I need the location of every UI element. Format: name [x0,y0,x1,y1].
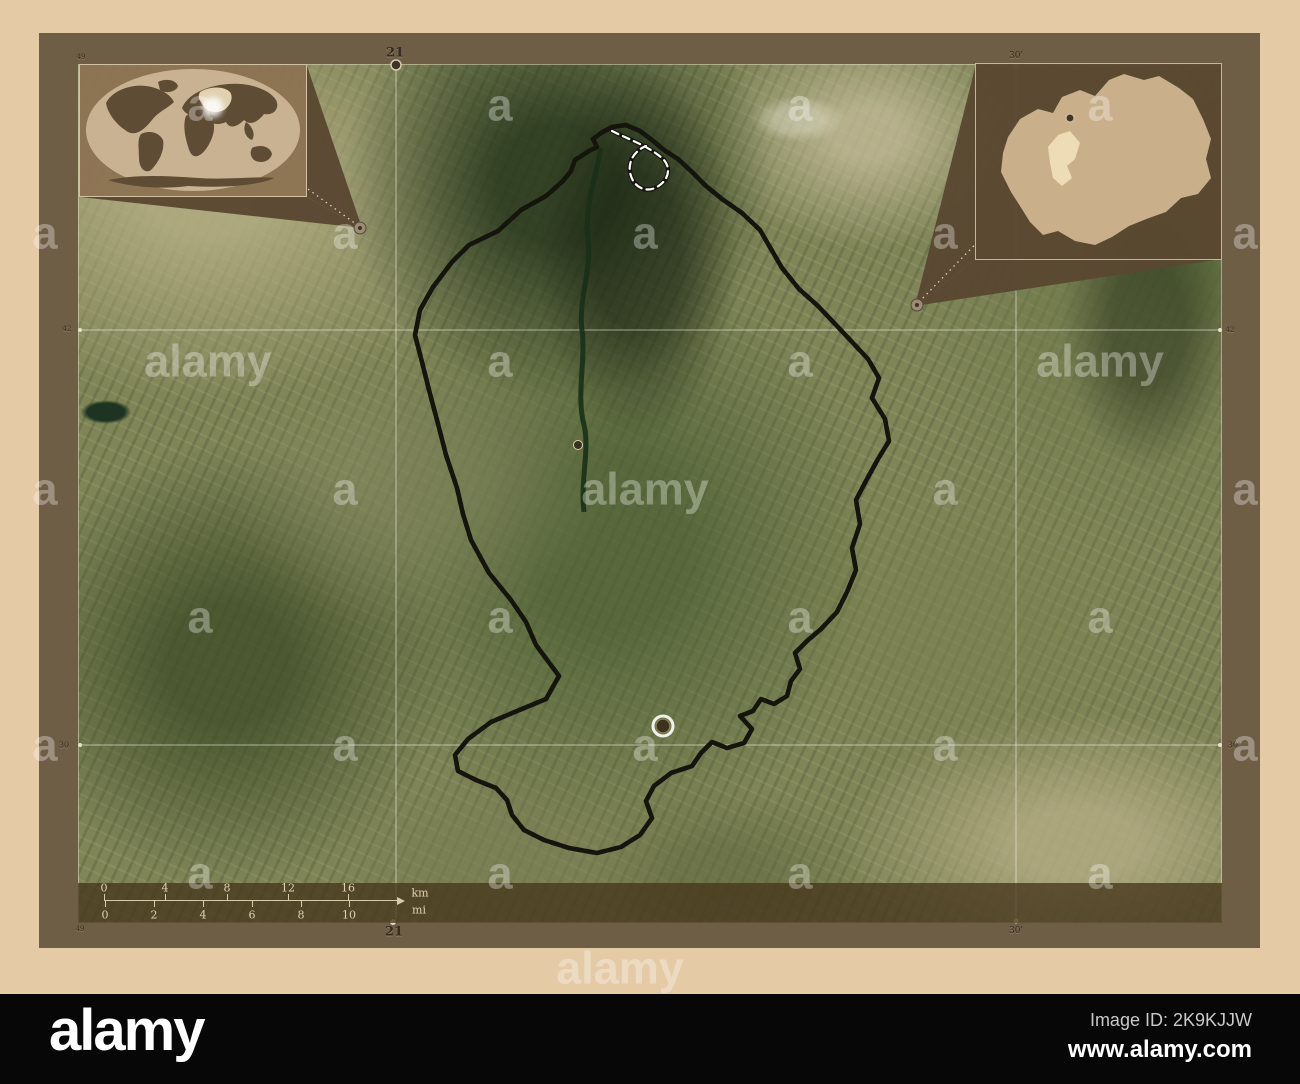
graticule-label: 30' [1009,51,1023,61]
scalebar-mi-tick-label: 10 [342,909,356,922]
scalebar-arrow-icon [397,897,405,905]
alamy-watermark: a [487,595,512,640]
alamy-watermark: alamy [581,467,709,512]
alamy-watermark: alamy [144,339,272,384]
capital-dot [1066,114,1074,122]
alamy-watermark: a [632,723,657,768]
scalebar-km-tick-label: 12 [281,882,295,895]
graticule-label: 30' [1009,926,1023,936]
scalebar-mi-unit: mi [412,904,426,917]
scalebar-tick [348,894,349,900]
graticule-label: 49 [76,925,85,933]
alamy-watermark: a [187,851,212,896]
alamy-watermark: a [1087,83,1112,128]
graticule-label: 42 [63,325,72,333]
alamy-watermark: a [1087,595,1112,640]
graticule-label: 49 [77,53,86,61]
alamy-watermark: a [932,467,957,512]
alamy-watermark: a [487,851,512,896]
scalebar-km-tick-label: 8 [224,882,231,895]
alamy-url-text: www.alamy.com [1068,1036,1252,1064]
alamy-watermark: a [787,595,812,640]
alamy-watermark: a [1232,723,1257,768]
scalebar-km-unit: km [411,887,428,900]
stock-photo-canvas: 492130'492130'42304230' 04812160246810 k… [0,0,1300,1084]
alamy-logo: alamy [49,1002,203,1060]
graticule-label: 21 [385,925,403,940]
alamy-watermark: a [1232,211,1257,256]
scalebar-tick [252,901,253,907]
alamy-watermark: a [187,83,212,128]
scalebar-tick [227,894,228,900]
graticule-label: 42 [1226,326,1235,334]
alamy-watermark: a [332,723,357,768]
alamy-watermark: a [1232,467,1257,512]
scalebar-mi-tick-label: 2 [151,909,158,922]
alamy-watermark: a [332,211,357,256]
alamy-watermark: a [787,339,812,384]
image-id-text: Image ID: 2K9KJJW [1090,1010,1252,1031]
alamy-watermark: a [32,723,57,768]
alamy-watermark: alamy [1036,339,1164,384]
scalebar-mi-tick-label: 4 [200,909,207,922]
alamy-watermark: a [632,211,657,256]
scalebar-line [104,900,398,901]
alamy-watermark: a [32,467,57,512]
alamy-watermark: a [487,339,512,384]
alamy-watermark: a [487,83,512,128]
alamy-watermark: a [332,467,357,512]
scalebar-mi-tick-label: 6 [249,909,256,922]
alamy-watermark: a [787,83,812,128]
scalebar-tick [301,901,302,907]
alamy-watermark: a [32,211,57,256]
scalebar-tick [349,901,350,907]
scalebar-tick [154,901,155,907]
scalebar-tick [105,901,106,907]
alamy-watermark: a [932,723,957,768]
alamy-watermark: a [187,595,212,640]
scalebar-km-tick-label: 0 [101,882,108,895]
scalebar-tick [104,894,105,900]
scalebar-km-tick-label: 16 [341,882,355,895]
alamy-watermark: a [787,851,812,896]
scalebar-tick [203,901,204,907]
alamy-watermark: a [932,211,957,256]
scalebar-tick [165,894,166,900]
graticule-label: 30 [59,741,69,750]
alamy-watermark: alamy [556,946,684,991]
scalebar-km-tick-label: 4 [162,882,169,895]
scalebar-tick [288,894,289,900]
alamy-footer: alamy Image ID: 2K9KJJW www.alamy.com [0,994,1300,1084]
alamy-watermark: a [1087,851,1112,896]
graticule-label: 21 [386,46,404,61]
scalebar-mi-tick-label: 8 [298,909,305,922]
scalebar-mi-tick-label: 0 [102,909,109,922]
